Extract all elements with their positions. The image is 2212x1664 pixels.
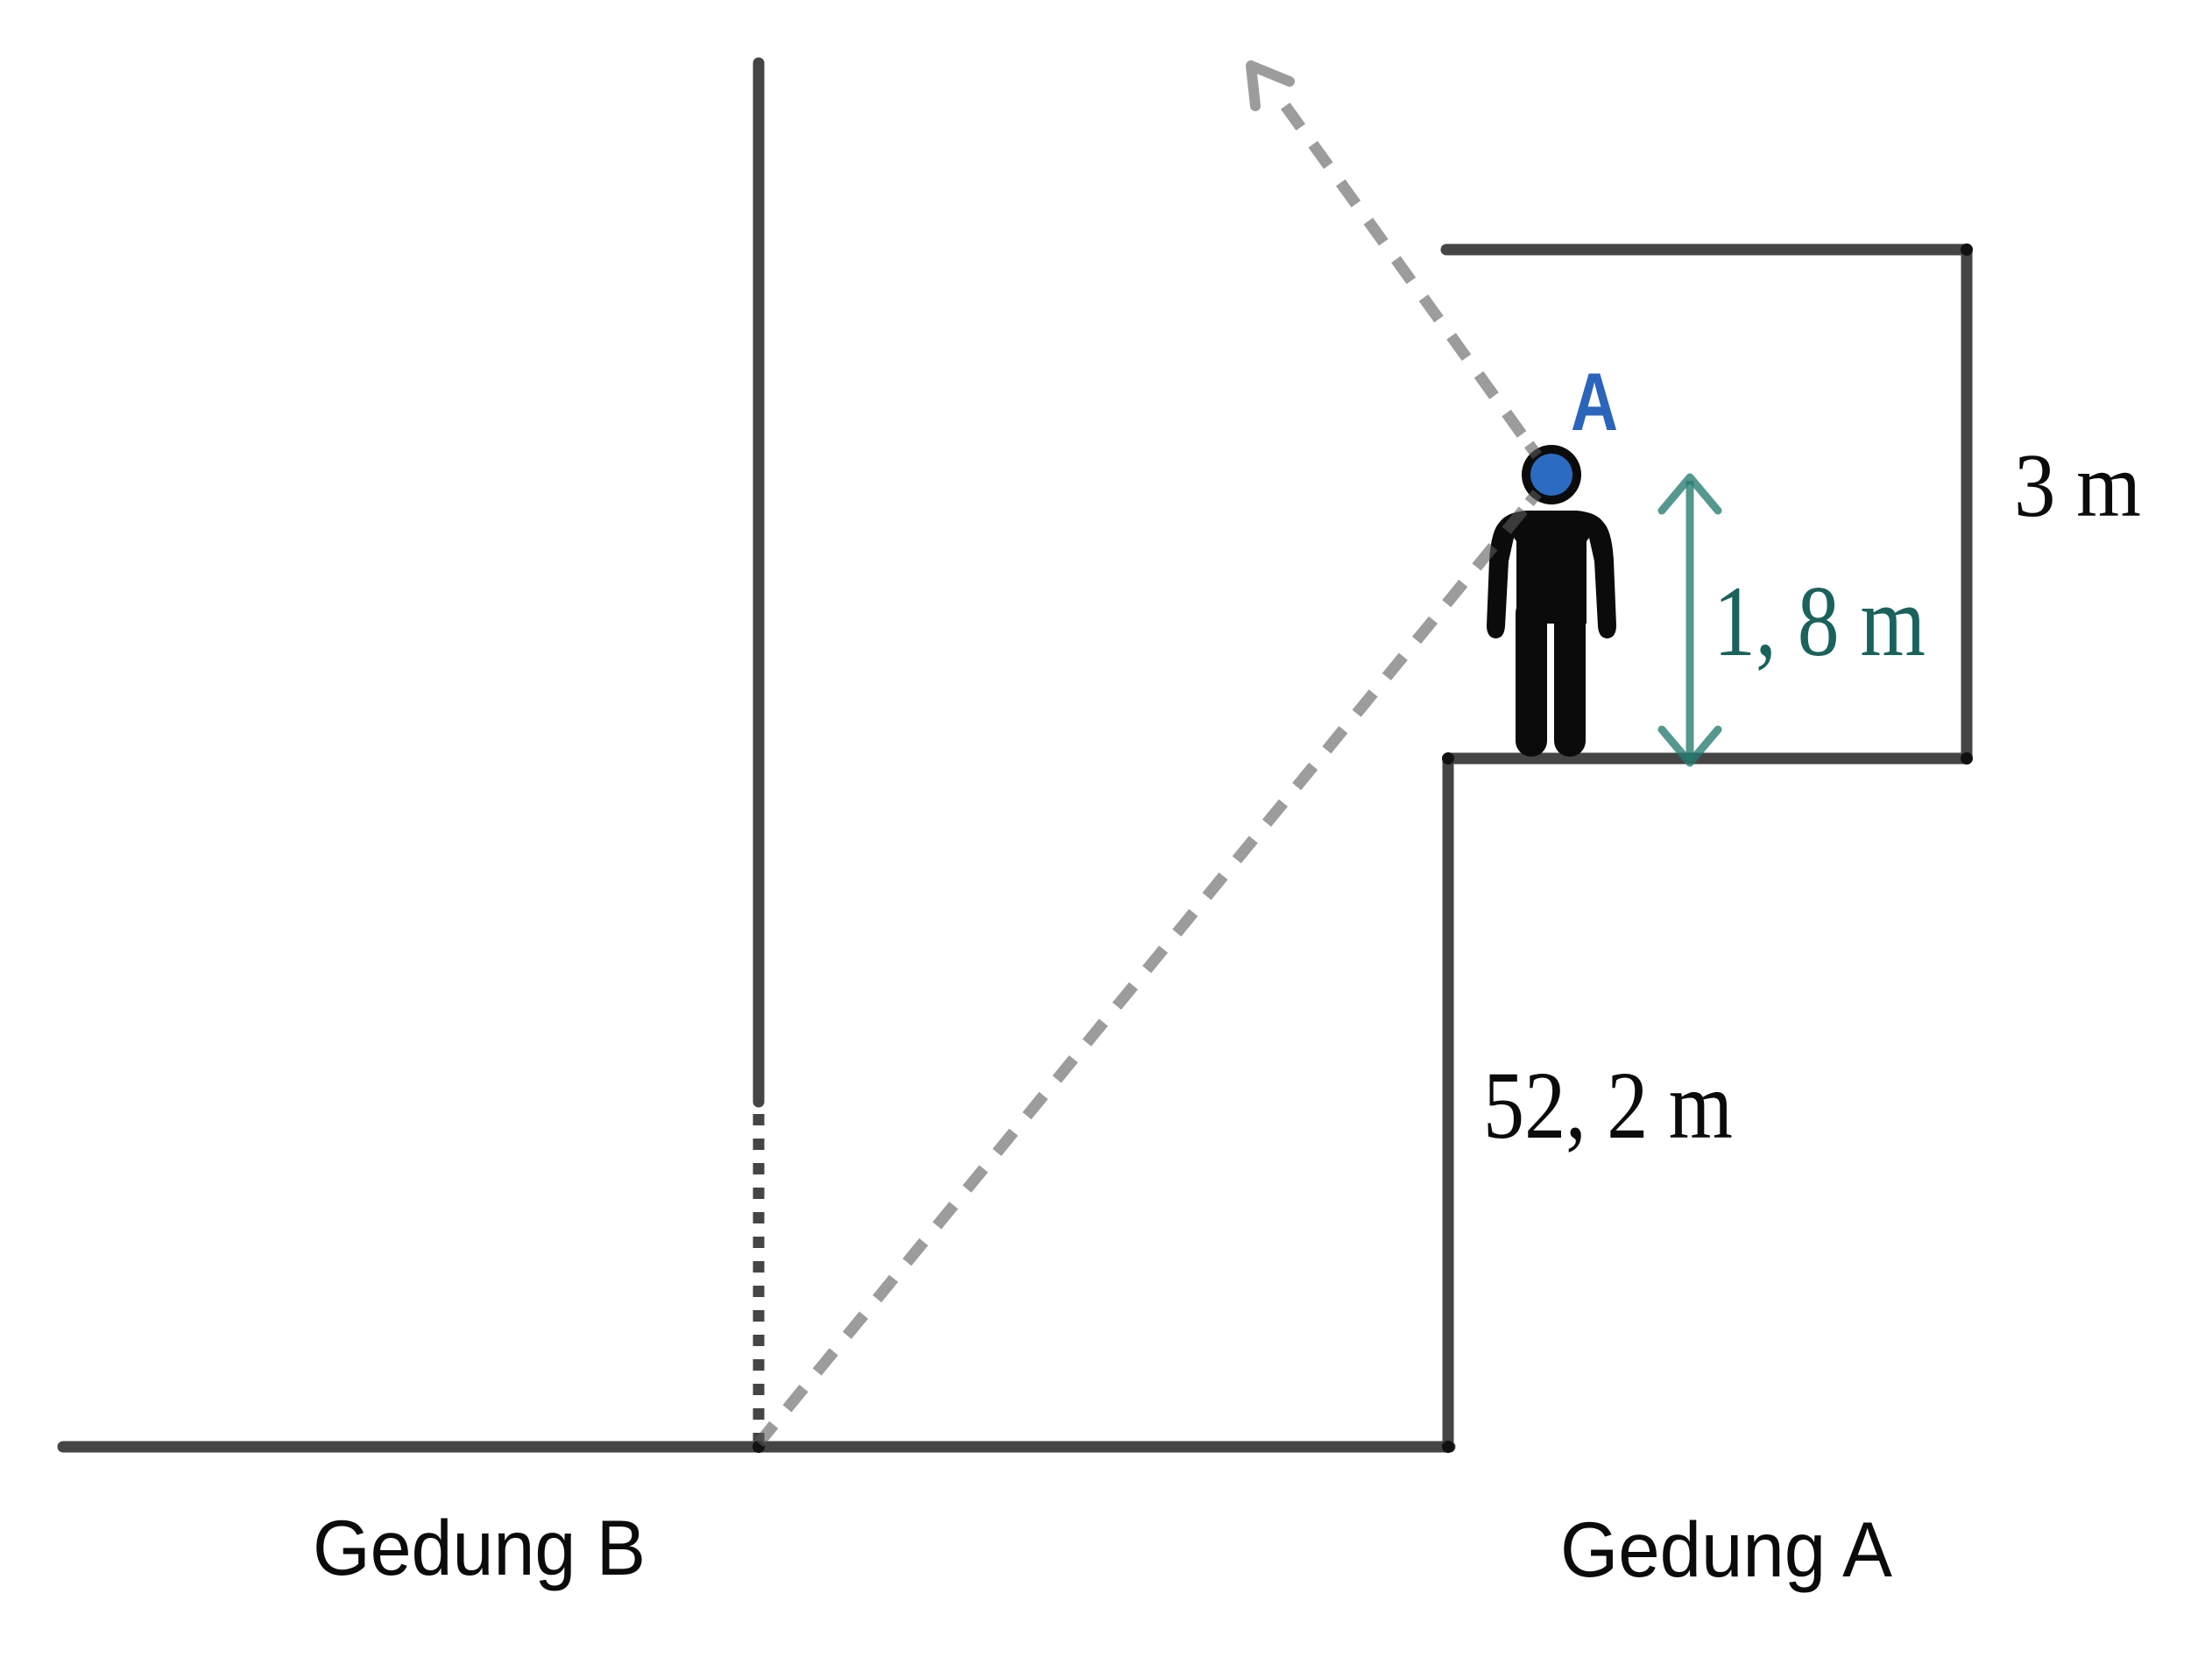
svg-text:Gedung A: Gedung A xyxy=(1560,1505,1893,1593)
svg-text:3 m: 3 m xyxy=(2014,435,2141,536)
svg-text:1, 8 m: 1, 8 m xyxy=(1714,566,1926,678)
svg-text:52, 2 m: 52, 2 m xyxy=(1483,1052,1733,1159)
svg-text:A: A xyxy=(1571,356,1618,448)
svg-text:Gedung B: Gedung B xyxy=(313,1504,646,1591)
